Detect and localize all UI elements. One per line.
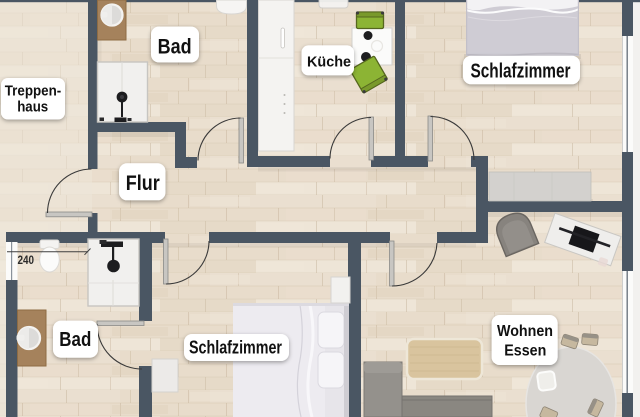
svg-text:240: 240 [18,253,35,267]
svg-text:Küche: Küche [307,54,351,71]
svg-text:Flur: Flur [126,172,160,195]
svg-text:Treppen-: Treppen- [5,84,62,100]
svg-text:Wohnen: Wohnen [497,323,553,340]
svg-text:Schlafzimmer: Schlafzimmer [471,60,571,82]
svg-text:Bad: Bad [59,328,91,351]
svg-text:Schlafzimmer: Schlafzimmer [189,338,282,358]
svg-text:haus: haus [17,100,48,116]
svg-text:Bad: Bad [158,35,192,58]
svg-text:Essen: Essen [504,342,546,359]
